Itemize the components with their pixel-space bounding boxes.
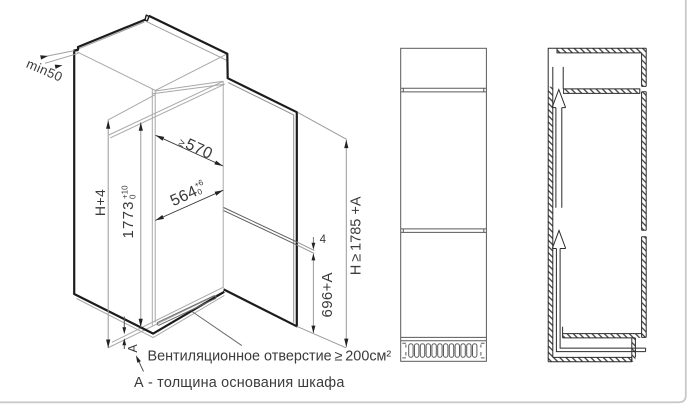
svg-text:А - толщина основания шкафа: А - толщина основания шкафа xyxy=(134,375,345,391)
svg-text:Вентиляционное отверстие ≥ 200: Вентиляционное отверстие ≥ 200см² xyxy=(148,349,392,365)
svg-text:696+A: 696+A xyxy=(319,272,336,317)
svg-text:1773: 1773 xyxy=(120,200,137,238)
svg-text:H+4: H+4 xyxy=(92,189,108,216)
svg-text:0: 0 xyxy=(129,194,138,199)
svg-text:4: 4 xyxy=(320,234,327,246)
svg-text:H ≥ 1785 +A: H ≥ 1785 +A xyxy=(348,196,364,275)
svg-text:А: А xyxy=(126,344,140,353)
